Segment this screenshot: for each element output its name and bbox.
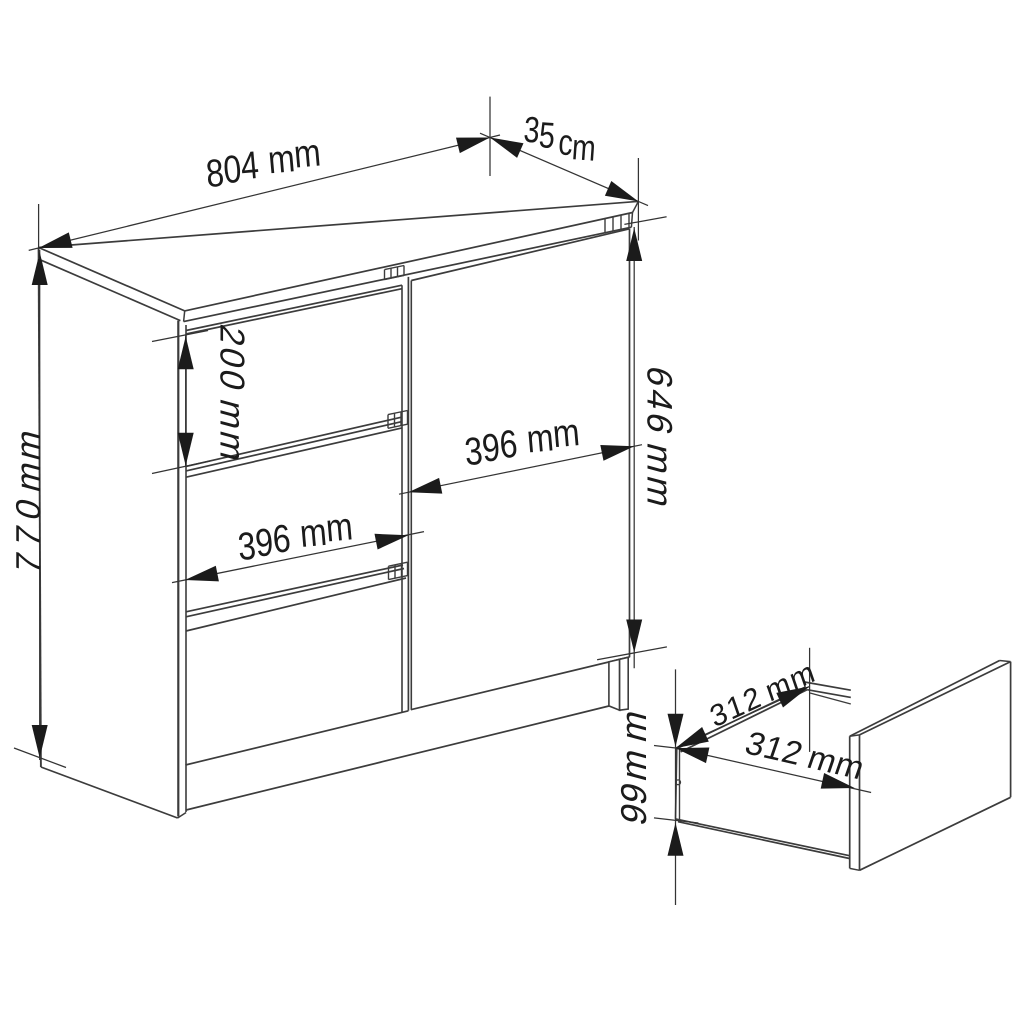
svg-text:m: m xyxy=(298,510,328,556)
svg-text:m: m xyxy=(292,130,322,176)
svg-text:646: 646 xyxy=(640,362,680,443)
svg-text:mm: mm xyxy=(10,422,48,495)
svg-text:m: m xyxy=(571,126,598,169)
svg-text:4: 4 xyxy=(239,143,261,188)
svg-text:mm: mm xyxy=(614,696,654,785)
svg-text:99: 99 xyxy=(614,778,654,830)
svg-text:200: 200 xyxy=(213,321,251,398)
svg-text:m: m xyxy=(324,504,354,550)
svg-text:m: m xyxy=(266,136,296,182)
svg-text:6: 6 xyxy=(498,422,520,467)
svg-text:6: 6 xyxy=(271,516,293,561)
svg-text:m: m xyxy=(525,415,555,461)
svg-text:mm: mm xyxy=(640,439,680,516)
svg-text:770: 770 xyxy=(10,487,48,578)
svg-text:5: 5 xyxy=(538,114,557,156)
svg-text:m: m xyxy=(551,410,581,456)
svg-text:mm: mm xyxy=(213,395,251,469)
